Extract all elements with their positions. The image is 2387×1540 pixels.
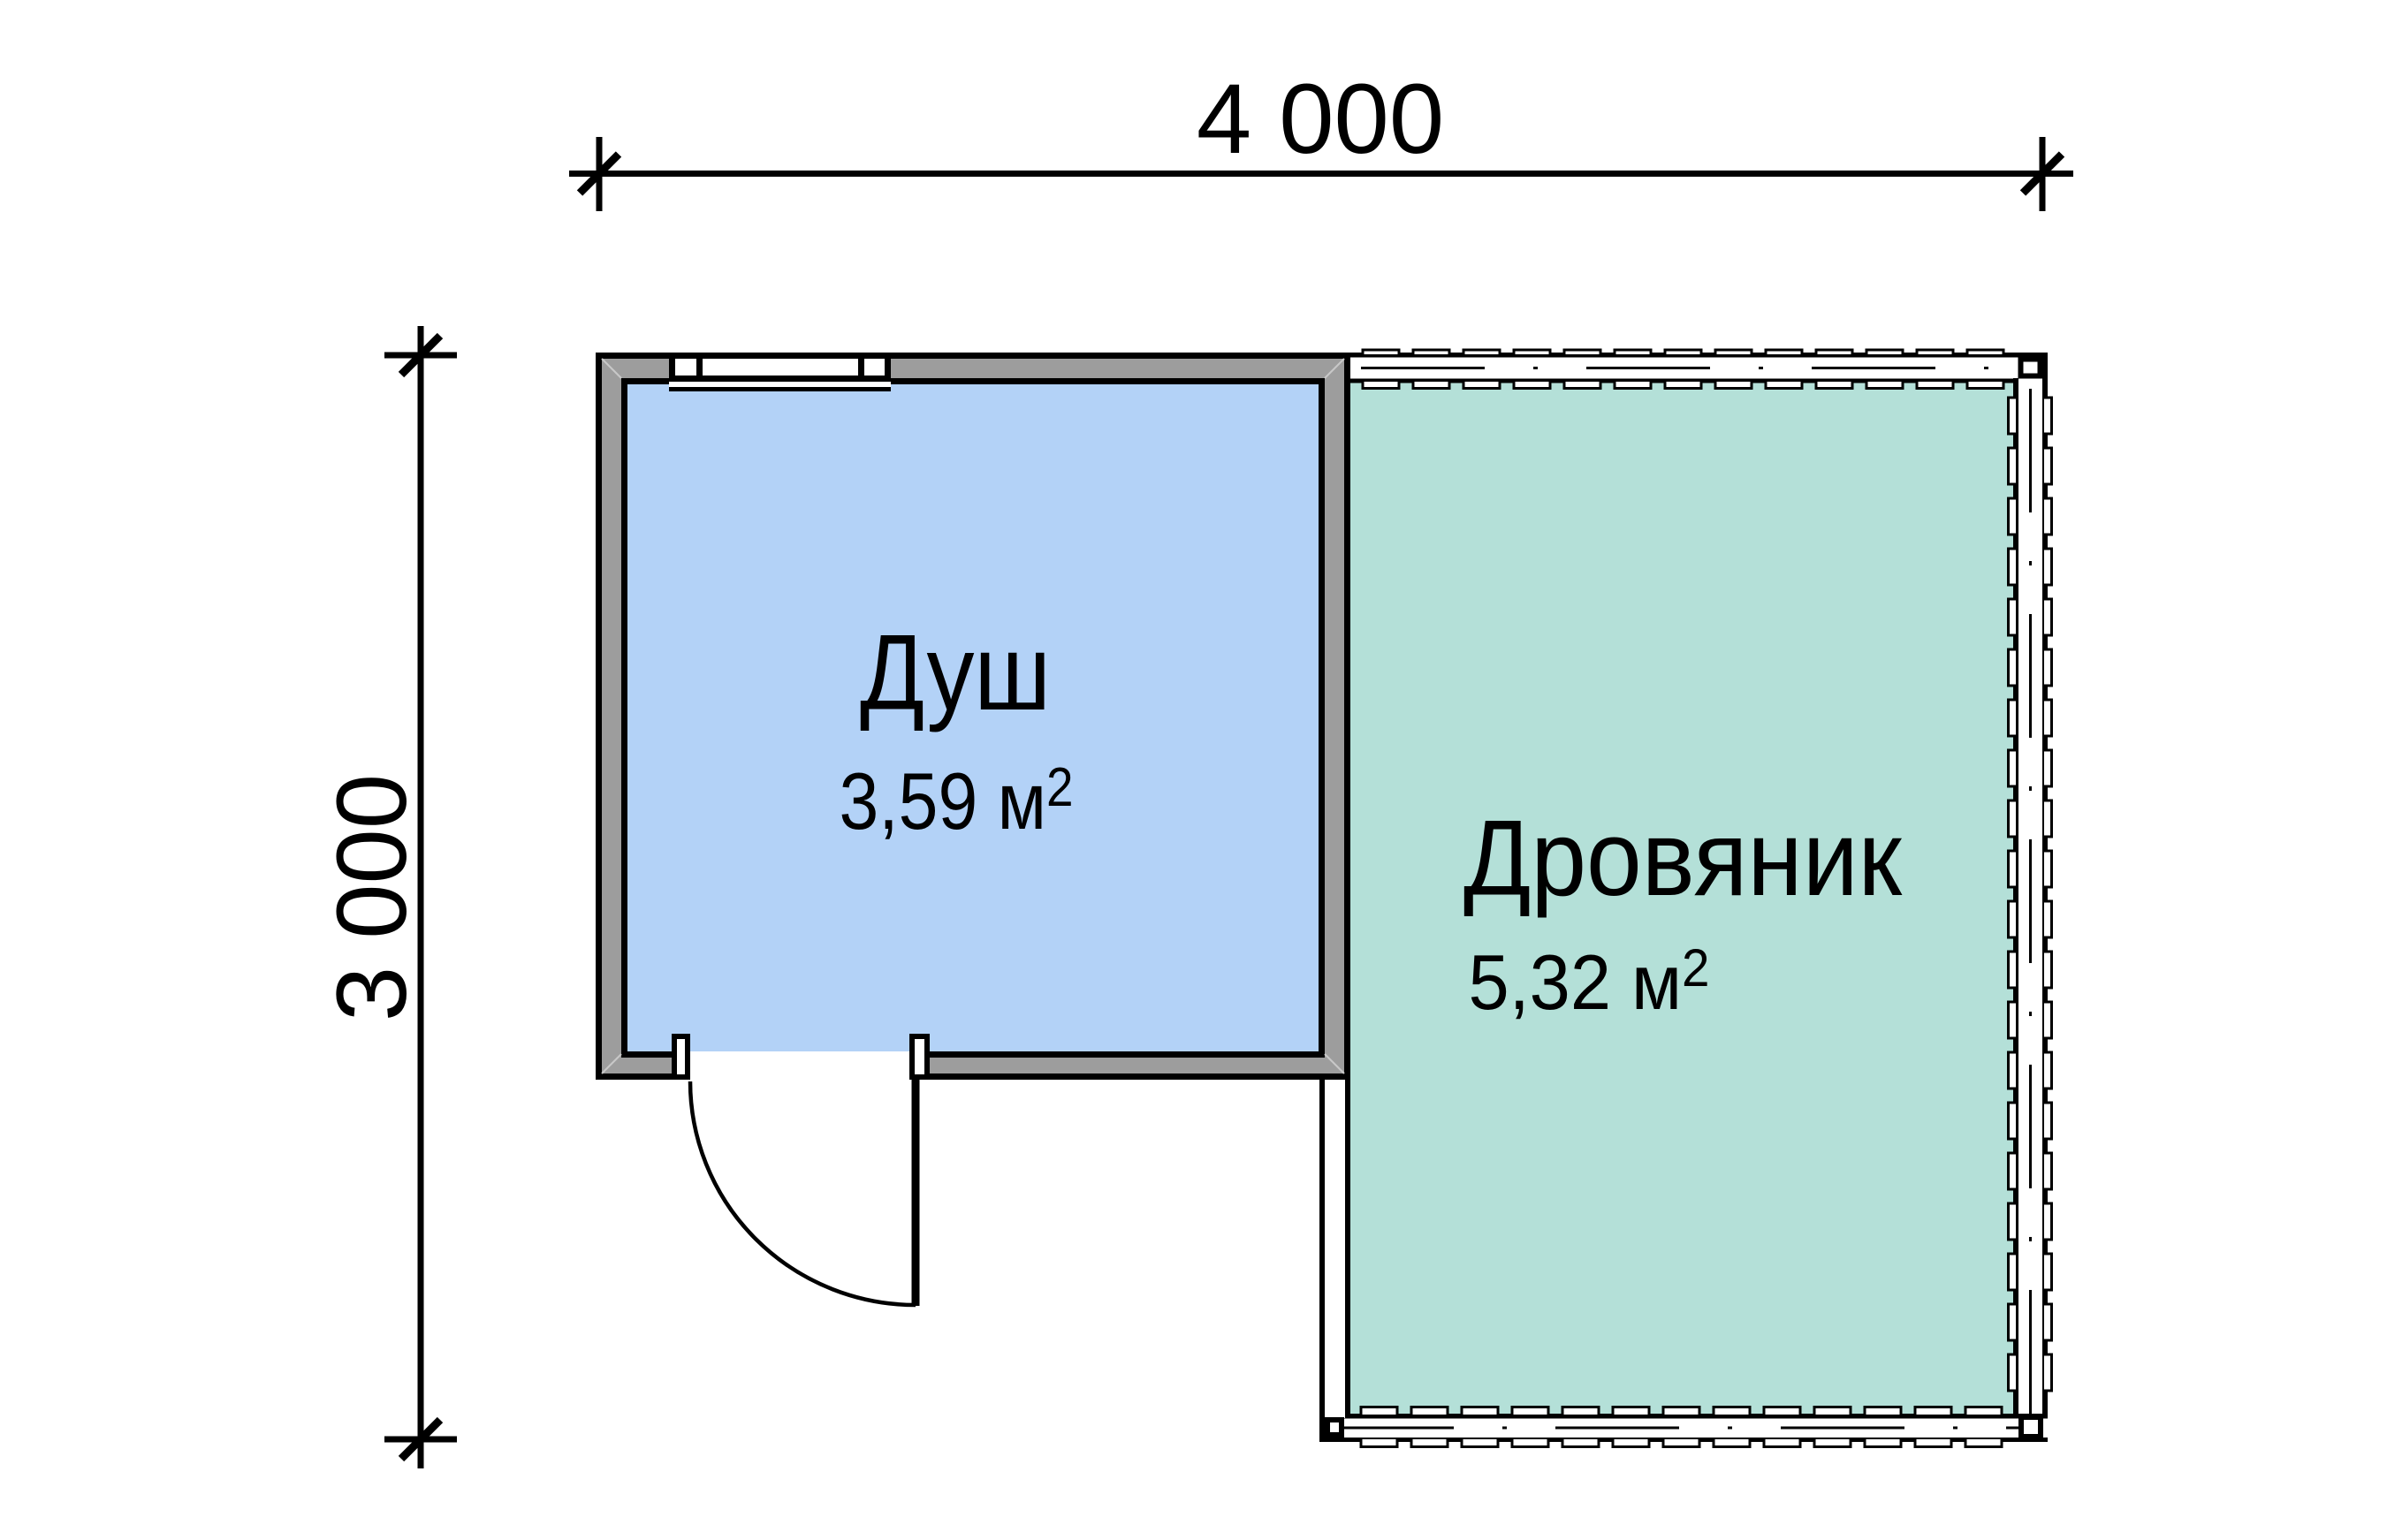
svg-text:Дровяник: Дровяник (1463, 798, 1903, 918)
svg-text:3,59 м2: 3,59 м2 (840, 757, 1074, 846)
svg-text:4 000: 4 000 (1197, 64, 1444, 174)
svg-text:Душ: Душ (860, 612, 1051, 732)
svg-text:5,32 м2: 5,32 м2 (1469, 938, 1710, 1026)
svg-text:3 000: 3 000 (316, 774, 427, 1021)
